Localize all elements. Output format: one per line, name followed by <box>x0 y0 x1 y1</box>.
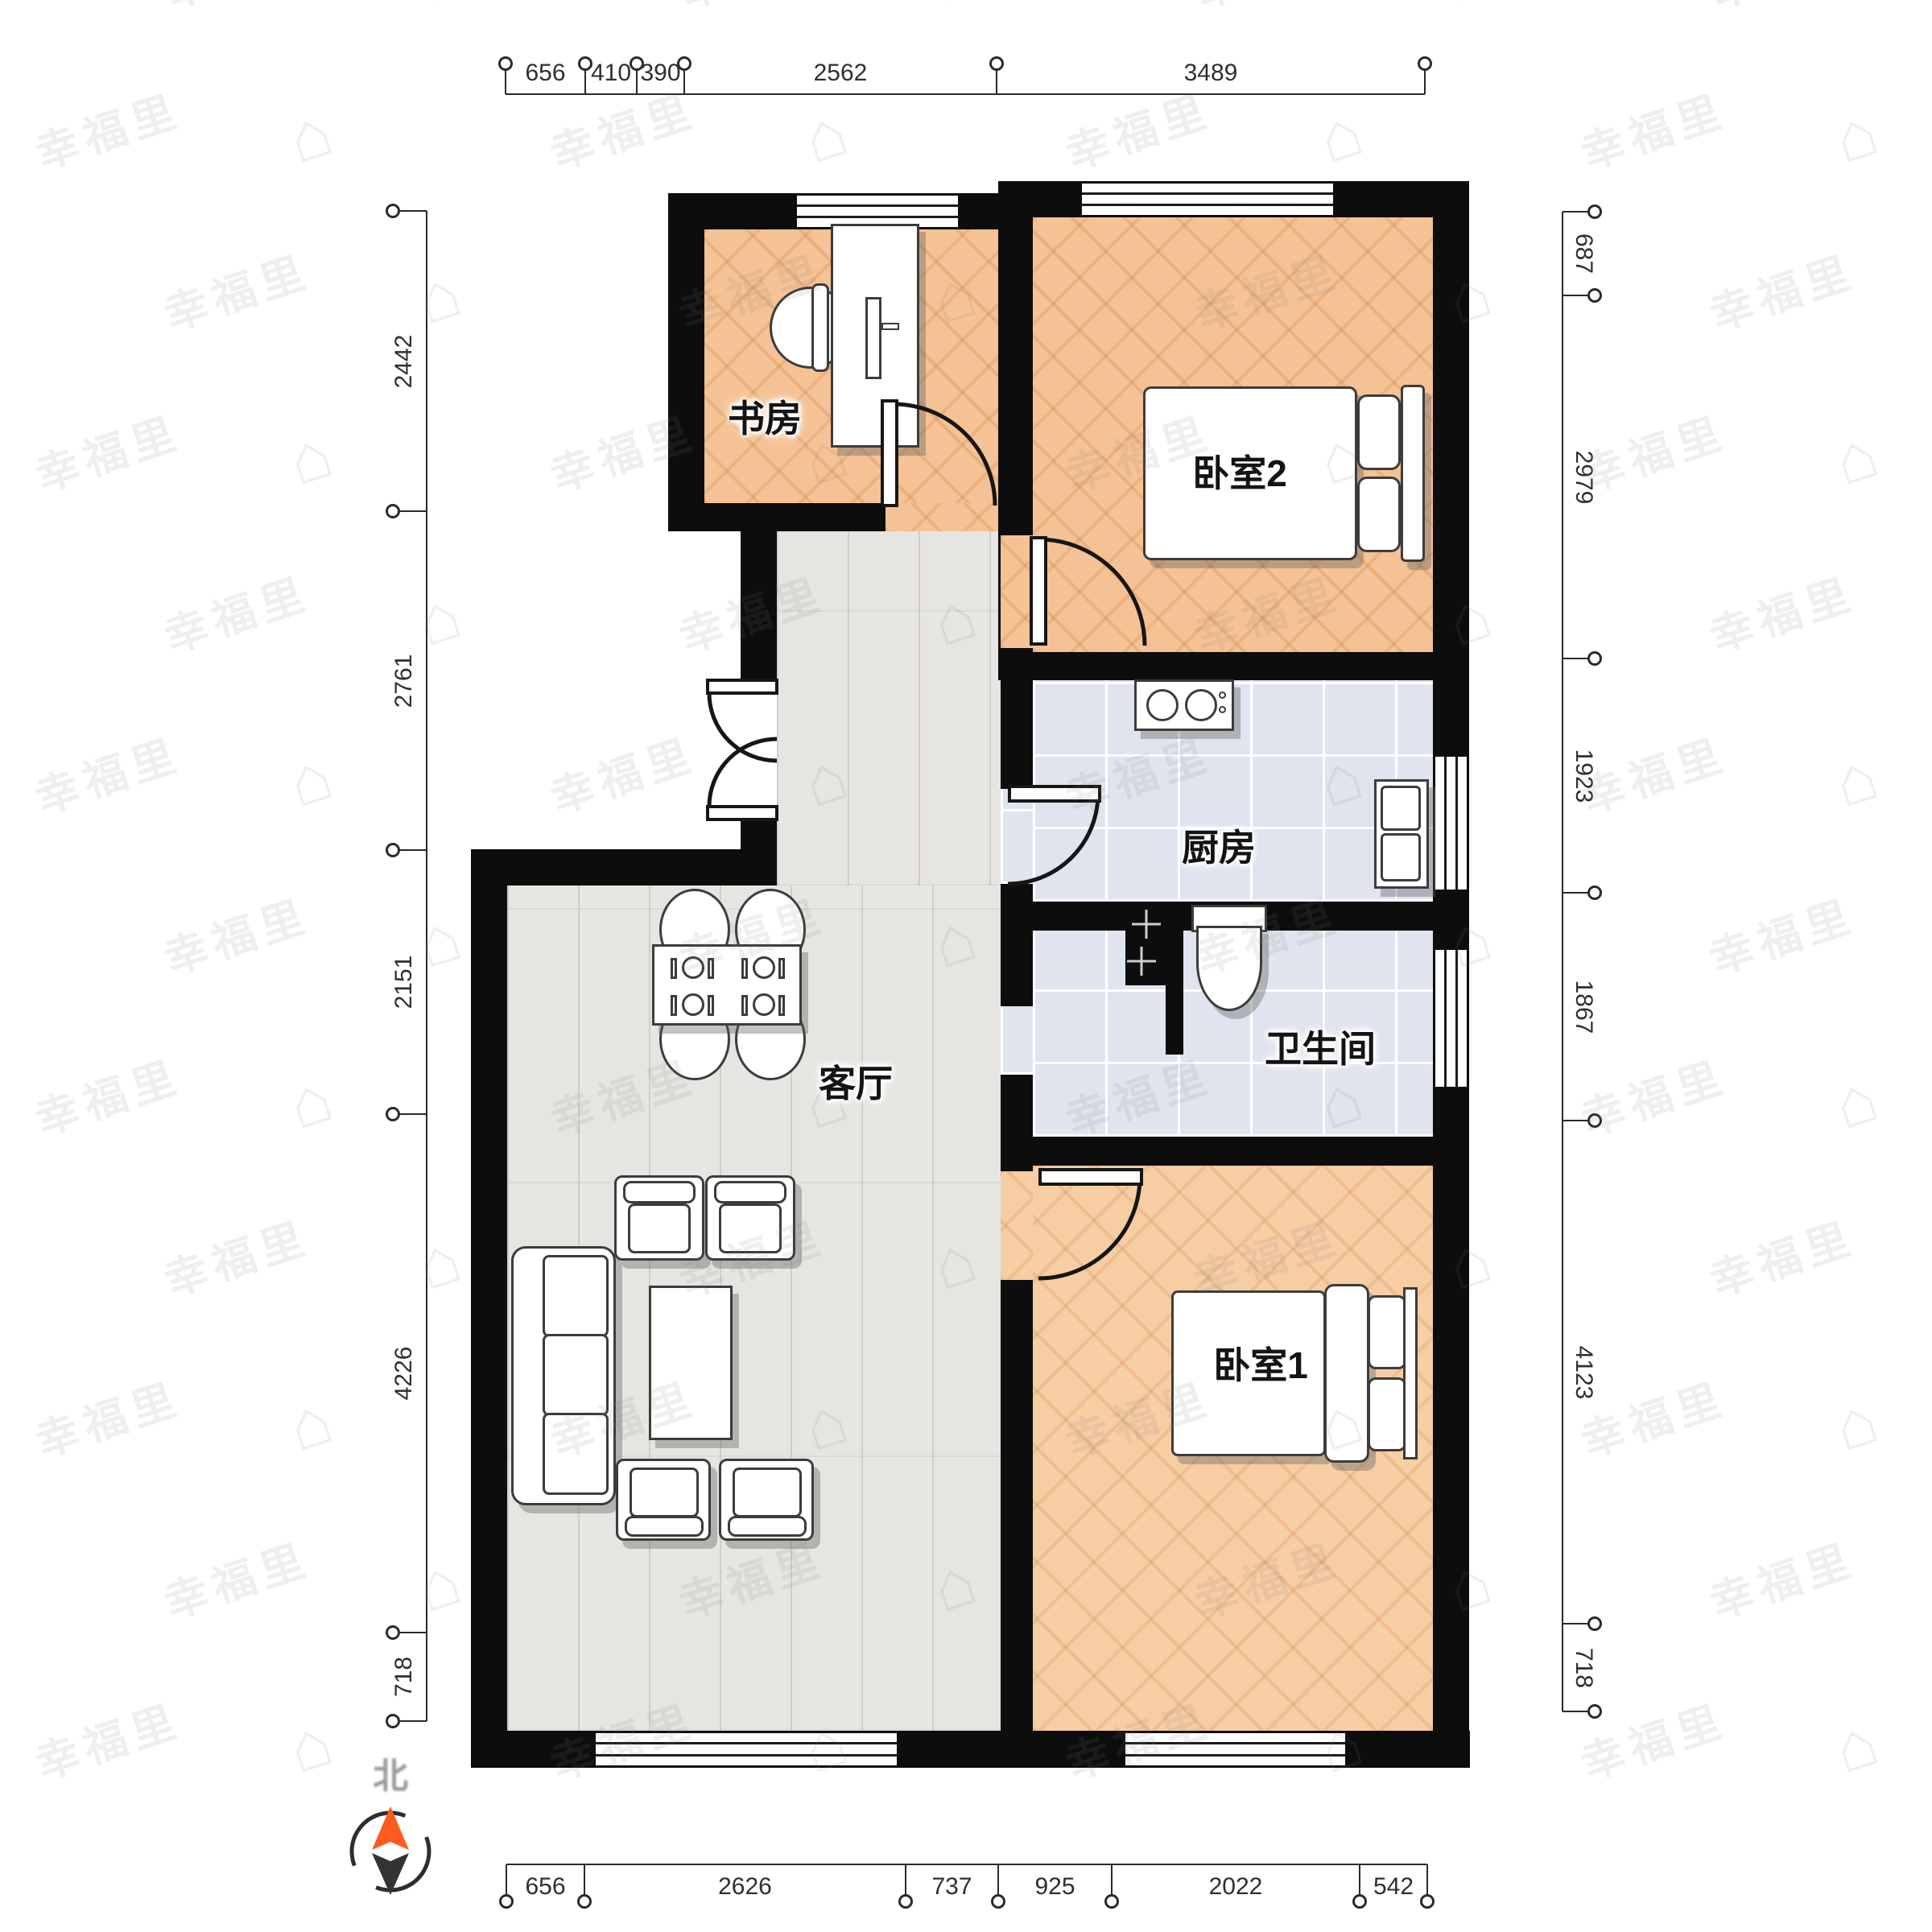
room-label-bedroom2: 卧室2 <box>1192 444 1287 497</box>
bedroom1-door-arc <box>1038 1177 1140 1278</box>
room-label-living: 客厅 <box>819 1055 893 1108</box>
room-label-bathroom: 卫生间 <box>1265 1020 1376 1073</box>
bedroom2-door-leaf <box>1031 538 1046 644</box>
floor-plan-canvas: 书房 卧室2 厨房 卫生间 客厅 卧室1 北 65641039025623489… <box>0 0 1932 1932</box>
bedroom1-door-leaf <box>1040 1170 1141 1184</box>
room-label-kitchen: 厨房 <box>1182 819 1256 872</box>
entry-door-arc <box>709 739 777 807</box>
door-swings <box>0 0 1932 1932</box>
kitchen-door-arc <box>1008 794 1098 884</box>
entry-door-leaf <box>708 807 777 819</box>
entry-door-arc <box>709 693 777 761</box>
study-door-arc <box>894 404 995 506</box>
room-label-study: 书房 <box>728 390 802 443</box>
bedroom2-door-arc <box>1038 539 1145 646</box>
entry-door-leaf <box>708 680 777 693</box>
study-door-leaf <box>882 401 897 506</box>
room-label-bedroom1: 卧室1 <box>1213 1336 1308 1389</box>
kitchen-door-leaf <box>1009 786 1100 801</box>
